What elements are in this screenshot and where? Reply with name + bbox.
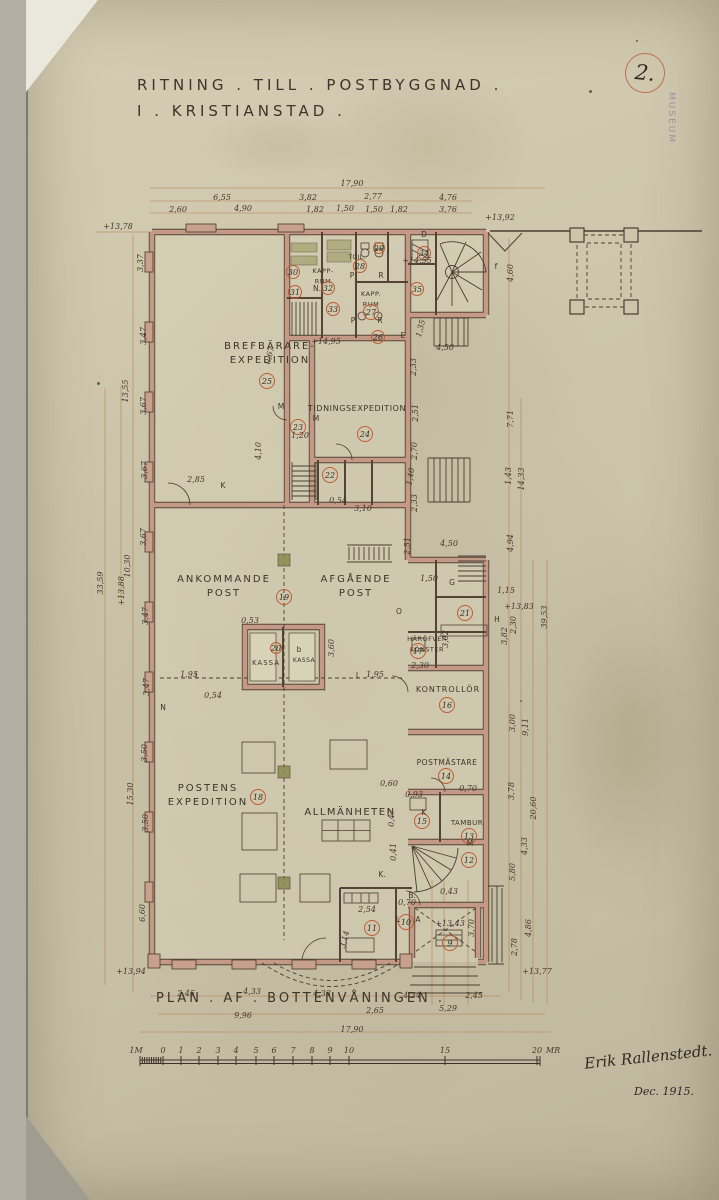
room-label: TIDNINGSEXPEDITION bbox=[307, 404, 406, 413]
scale-tick-label: 7 bbox=[290, 1046, 296, 1055]
letter-marker: N bbox=[160, 703, 166, 712]
scale-tick-label: 3 bbox=[215, 1046, 220, 1055]
svg-text:15: 15 bbox=[417, 817, 427, 826]
letter-marker: P bbox=[350, 271, 355, 280]
svg-text:26: 26 bbox=[372, 333, 383, 342]
letter-marker: O bbox=[396, 607, 402, 616]
dimension-label: 2,51 bbox=[403, 537, 412, 556]
scale-tick-label: 1 bbox=[178, 1046, 183, 1055]
dimension-label: 0,54 bbox=[329, 496, 347, 505]
letter-marker: R bbox=[378, 271, 383, 280]
dimension-label: 6,55 bbox=[213, 193, 231, 202]
letter-marker: f bbox=[495, 262, 498, 271]
letter-marker: H bbox=[494, 615, 500, 624]
dimension-label: 3,50 bbox=[141, 814, 150, 832]
svg-text:28: 28 bbox=[354, 262, 365, 271]
dimension-label: 3,82 bbox=[299, 193, 317, 202]
dimension-label: 3,47 bbox=[141, 606, 150, 625]
dimension-label: +13,43 bbox=[435, 919, 465, 928]
dimension-label: 5,80 bbox=[508, 863, 517, 881]
dimension-label: 0,54 bbox=[204, 691, 222, 700]
scale-tick-label: 15 bbox=[440, 1046, 450, 1055]
letter-marker: A bbox=[415, 915, 421, 924]
dimension-label: 2,60 bbox=[168, 205, 187, 214]
dimension-label: 3,37 bbox=[136, 253, 145, 272]
scale-bar: 1M0123456789101520MR bbox=[129, 1046, 560, 1066]
room-number-29: 29 bbox=[373, 243, 385, 254]
dimension-label: 0,60 bbox=[380, 779, 398, 788]
dimension-label: 2,33 bbox=[410, 494, 419, 513]
dimension-label: 0,53 bbox=[241, 616, 259, 625]
svg-text:25: 25 bbox=[261, 377, 272, 386]
dimension-label: 9,96 bbox=[234, 1011, 252, 1020]
room-label: KASSA bbox=[252, 659, 280, 667]
letter-marker: P bbox=[351, 316, 356, 325]
svg-text:35: 35 bbox=[412, 285, 422, 294]
scale-tick-label: 4 bbox=[232, 1046, 238, 1055]
dimension-label: 4,60 bbox=[506, 264, 515, 283]
dimension-label: 4,90 bbox=[233, 204, 252, 213]
svg-text:27: 27 bbox=[365, 308, 377, 317]
dimension-label: 4,10 bbox=[254, 442, 263, 461]
dimension-label: 3,10 bbox=[354, 504, 372, 513]
dimension-label: +13,77 bbox=[522, 967, 553, 976]
svg-text:9: 9 bbox=[447, 939, 452, 948]
svg-text:20: 20 bbox=[270, 644, 281, 653]
letter-marker: N. bbox=[313, 284, 321, 293]
dimension-label: 2,51 bbox=[411, 404, 420, 423]
dimension-label: +13,94 bbox=[116, 967, 146, 976]
dimension-label: 1,35 bbox=[414, 319, 427, 339]
dimension-label: 0,41 bbox=[389, 843, 398, 861]
dimension-label: 3,67 bbox=[139, 527, 148, 546]
dimension-label: 3,47 bbox=[142, 677, 151, 696]
scale-tick-label: 10 bbox=[344, 1046, 354, 1055]
dimension-label: 17,90 bbox=[341, 179, 364, 188]
dimension-label: 6,60 bbox=[138, 904, 147, 922]
dimension-label: 3,70 bbox=[467, 919, 476, 937]
museum-stamp: MUSEUM bbox=[666, 92, 676, 192]
room-number-26: 26 bbox=[372, 331, 385, 344]
letter-marker: D bbox=[421, 230, 427, 239]
dimension-label: 10,30 bbox=[123, 555, 132, 578]
dimension-label: 2,30 bbox=[509, 616, 518, 635]
dimension-label: 9,11 bbox=[521, 718, 530, 736]
floor-plan: BREFBÄRARE-EXPEDITIONTIDNINGSEXPEDITIONA… bbox=[0, 0, 719, 1200]
svg-text:21: 21 bbox=[459, 609, 470, 618]
letter-marker: M bbox=[278, 402, 284, 411]
dimension-label: 3,67 bbox=[139, 396, 148, 415]
plan-caption: PLAN . AF . BOTTENVÅNINGEN . bbox=[156, 991, 445, 1006]
dimension-label: 4,50 bbox=[435, 343, 454, 352]
scale-tick-label: 1M bbox=[129, 1046, 143, 1055]
letter-marker: G bbox=[449, 578, 455, 587]
dimension-label: 1,82 bbox=[390, 205, 408, 214]
scale-tick-label: 20 bbox=[531, 1046, 542, 1055]
dimension-label: 4,86 bbox=[524, 919, 533, 938]
dimension-label: 7,71 bbox=[506, 410, 515, 428]
room-label: KASSA bbox=[293, 657, 316, 664]
dimension-label: 2,54 bbox=[357, 905, 376, 914]
dimension-label: 15,30 bbox=[126, 783, 135, 806]
dimension-label: 4,76 bbox=[438, 193, 457, 202]
dimension-label: 3,60 bbox=[327, 639, 336, 657]
dimension-label: 1,95 bbox=[366, 670, 384, 679]
dimension-label: 39,53 bbox=[540, 606, 549, 629]
svg-text:32: 32 bbox=[323, 284, 333, 293]
dimension-label: 0,47 bbox=[387, 808, 396, 827]
dimension-label: +14,95 bbox=[311, 337, 341, 346]
room-number-35: 35 bbox=[411, 283, 424, 296]
dimension-label: 2,77 bbox=[363, 192, 383, 201]
room-number-32: 32 bbox=[322, 282, 335, 295]
room-number-30: 30 bbox=[287, 266, 300, 279]
room-label: POSTMÄSTARE bbox=[417, 758, 478, 767]
scale-tick-label: 2 bbox=[195, 1046, 201, 1055]
signature-date: Dec. 1915. bbox=[634, 1085, 694, 1098]
dimension-label: 1,40 bbox=[405, 467, 417, 486]
dimension-label: 3,78 bbox=[507, 782, 516, 800]
svg-text:22: 22 bbox=[324, 471, 335, 480]
svg-text:11: 11 bbox=[367, 924, 377, 933]
svg-text:14: 14 bbox=[441, 772, 451, 781]
dimension-label: 4,50 bbox=[439, 539, 458, 548]
dimension-label: 3,82 bbox=[500, 627, 509, 645]
dimension-label: 1,20 bbox=[291, 431, 309, 440]
dimension-label: 1,15 bbox=[497, 586, 515, 595]
dimension-label: 2,65 bbox=[365, 1006, 384, 1015]
dimension-label: 2,33 bbox=[409, 358, 418, 377]
room-number-28: 28 bbox=[354, 260, 367, 273]
svg-text:16: 16 bbox=[442, 701, 452, 710]
dimension-label: 0,43 bbox=[440, 887, 458, 896]
dimension-label: 4,94 bbox=[506, 534, 515, 553]
dimension-label: +13,83 bbox=[504, 602, 534, 611]
dimension-label: 2,45 bbox=[464, 991, 483, 1000]
dimension-label: 2,70 bbox=[410, 442, 419, 461]
dimension-label: 2,30 bbox=[410, 661, 429, 670]
svg-text:24: 24 bbox=[359, 430, 370, 439]
svg-text:17: 17 bbox=[413, 647, 424, 656]
room-number-33: 33 bbox=[327, 303, 340, 316]
scanned-drawing-sheet: BREFBÄRARE-EXPEDITIONTIDNINGSEXPEDITIONA… bbox=[0, 0, 719, 1200]
svg-text:30: 30 bbox=[288, 268, 298, 277]
dimension-label: 17,90 bbox=[341, 1025, 364, 1034]
svg-text:10: 10 bbox=[401, 918, 411, 927]
dimension-label: 2,78 bbox=[510, 938, 519, 957]
letter-marker: b bbox=[297, 645, 302, 654]
dimension-label: +14,55 bbox=[402, 256, 432, 265]
letter-marker: B. bbox=[408, 891, 416, 900]
dimension-label: 3,67 bbox=[140, 460, 149, 479]
dimension-label: 14,33 bbox=[517, 468, 526, 491]
dimension-label: 3,02 bbox=[441, 630, 450, 648]
room-number-31: 31 bbox=[289, 286, 302, 299]
svg-text:33: 33 bbox=[328, 305, 338, 314]
room-label: ALLMÄNHETEN bbox=[304, 805, 395, 818]
dimension-label: 3,00 bbox=[508, 714, 517, 732]
letter-marker: E bbox=[401, 331, 406, 340]
dimension-label: 0,93 bbox=[405, 790, 423, 799]
room-label: KONTROLLÖR bbox=[416, 684, 480, 694]
dimension-label: 1,50 bbox=[336, 204, 354, 213]
courtyard-gate bbox=[488, 228, 702, 314]
svg-text:31: 31 bbox=[290, 288, 300, 297]
drawing-title-line1: RITNING . TILL . POSTBYGGNAD . bbox=[137, 76, 502, 94]
dimension-label: 4,33 bbox=[520, 837, 529, 856]
dimension-label: 3,50 bbox=[140, 744, 149, 762]
scale-tick-label: 8 bbox=[309, 1046, 314, 1055]
room-number-20: 20 bbox=[270, 643, 282, 654]
scale-tick-label: MR bbox=[545, 1046, 560, 1055]
svg-text:18: 18 bbox=[253, 793, 263, 802]
dimension-label: +13,88 bbox=[117, 576, 126, 606]
dimension-label: 1,43 bbox=[504, 467, 513, 485]
dimension-label: +13,92 bbox=[485, 213, 515, 222]
svg-text:19: 19 bbox=[279, 593, 289, 602]
dimension-label: 0,70 bbox=[459, 784, 477, 793]
svg-text:29: 29 bbox=[373, 244, 384, 253]
letter-marker: M bbox=[467, 839, 473, 848]
dimension-label: 1,50 bbox=[365, 205, 383, 214]
dimension-label: 33,59 bbox=[96, 572, 105, 595]
dimension-label: 3,47 bbox=[139, 326, 148, 345]
dimension-label: 3,76 bbox=[439, 205, 457, 214]
scale-tick-label: 9 bbox=[327, 1046, 332, 1055]
svg-text:12: 12 bbox=[464, 856, 474, 865]
dimension-label: 13,55 bbox=[121, 380, 130, 403]
letter-marker: K. bbox=[378, 870, 385, 879]
drawing-title-line2: I . KRISTIANSTAD . bbox=[137, 102, 346, 120]
letter-marker: M bbox=[313, 414, 319, 423]
scale-tick-label: 6 bbox=[271, 1046, 276, 1055]
dimension-label: 1,50 bbox=[420, 574, 438, 583]
scale-tick-label: 0 bbox=[160, 1046, 165, 1055]
letter-marker: R bbox=[377, 316, 382, 325]
scale-tick-label: 5 bbox=[253, 1046, 258, 1055]
dimension-label: 20,60 bbox=[529, 797, 538, 821]
dimension-label: 1,82 bbox=[306, 205, 324, 214]
room-label: TAMBUR bbox=[450, 819, 483, 827]
dimension-label: 2,85 bbox=[186, 475, 205, 484]
dimension-label: +13,78 bbox=[103, 222, 133, 231]
